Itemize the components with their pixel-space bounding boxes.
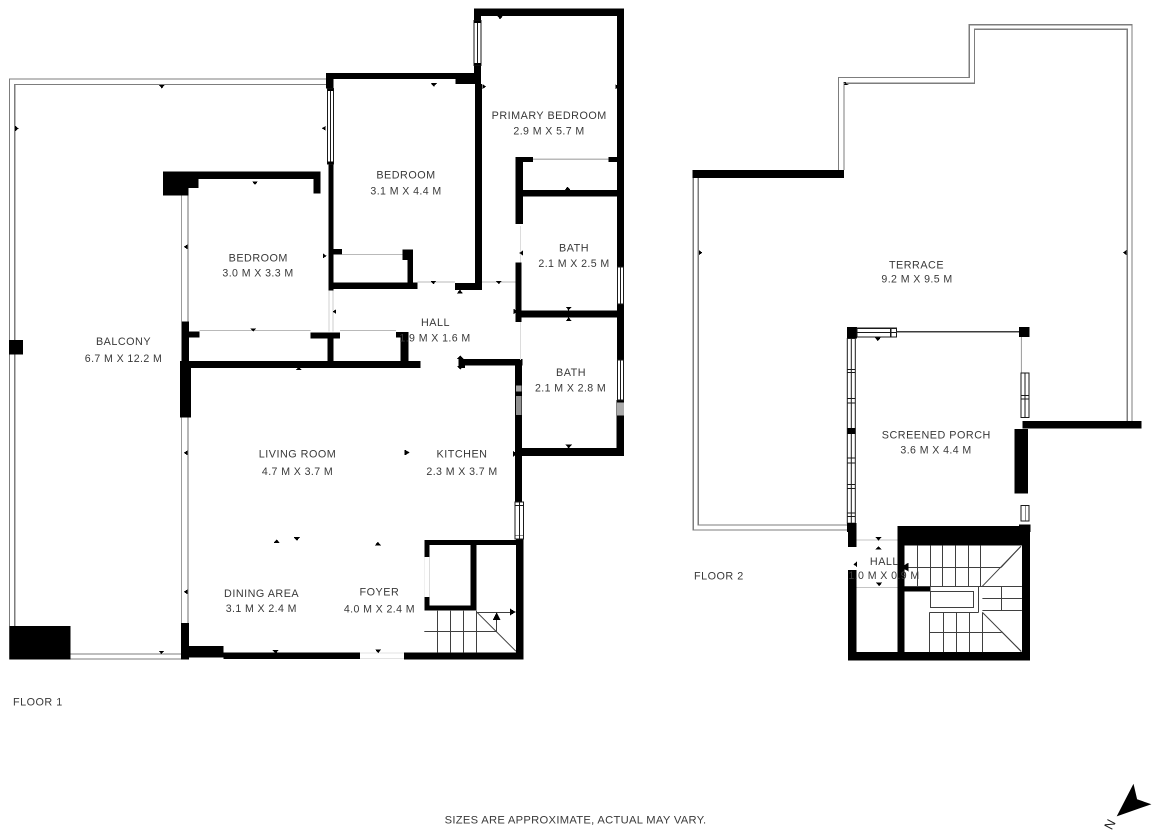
svg-text:2.1 M X 2.5 M: 2.1 M X 2.5 M: [538, 258, 609, 270]
svg-text:3.0 M X 3.3 M: 3.0 M X 3.3 M: [222, 268, 293, 280]
svg-text:KITCHEN: KITCHEN: [437, 449, 488, 461]
svg-text:6.7 M X 12.2 M: 6.7 M X 12.2 M: [85, 353, 162, 365]
svg-text:LIVING ROOM: LIVING ROOM: [259, 449, 337, 461]
svg-text:DINING AREA: DINING AREA: [224, 588, 299, 600]
svg-text:1.9 M X 1.6 M: 1.9 M X 1.6 M: [399, 333, 470, 345]
svg-text:3.1 M X 2.4 M: 3.1 M X 2.4 M: [226, 603, 297, 615]
svg-text:TERRACE: TERRACE: [889, 260, 944, 272]
svg-text:HALL: HALL: [870, 556, 899, 568]
svg-text:PRIMARY BEDROOM: PRIMARY BEDROOM: [492, 110, 607, 122]
svg-text:SIZES ARE APPROXIMATE, ACTUAL: SIZES ARE APPROXIMATE, ACTUAL MAY VARY.: [445, 815, 707, 827]
svg-text:BATH: BATH: [559, 243, 589, 255]
svg-text:FLOOR 1: FLOOR 1: [13, 697, 63, 709]
svg-text:BEDROOM: BEDROOM: [376, 170, 435, 182]
svg-text:9.2 M X 9.5 M: 9.2 M X 9.5 M: [881, 274, 952, 286]
svg-text:BEDROOM: BEDROOM: [229, 252, 288, 264]
svg-text:FOYER: FOYER: [360, 587, 400, 599]
svg-text:3.6 M X 4.4 M: 3.6 M X 4.4 M: [900, 444, 971, 456]
svg-text:4.7 M X 3.7 M: 4.7 M X 3.7 M: [262, 466, 333, 478]
svg-text:2.1 M X 2.8 M: 2.1 M X 2.8 M: [535, 382, 606, 394]
svg-text:2.3 M X 3.7 M: 2.3 M X 3.7 M: [426, 466, 497, 478]
svg-text:FLOOR 2: FLOOR 2: [694, 571, 744, 583]
svg-text:SCREENED PORCH: SCREENED PORCH: [882, 429, 991, 441]
svg-text:3.1 M X 4.4 M: 3.1 M X 4.4 M: [370, 185, 441, 197]
svg-text:2.9 M X 5.7 M: 2.9 M X 5.7 M: [513, 126, 584, 138]
svg-text:BATH: BATH: [556, 367, 586, 379]
svg-text:HALL: HALL: [421, 317, 450, 329]
svg-text:BALCONY: BALCONY: [96, 336, 151, 348]
svg-text:1.0 M X 0.9 M: 1.0 M X 0.9 M: [848, 570, 919, 582]
svg-text:4.0 M X 2.4 M: 4.0 M X 2.4 M: [344, 603, 415, 615]
